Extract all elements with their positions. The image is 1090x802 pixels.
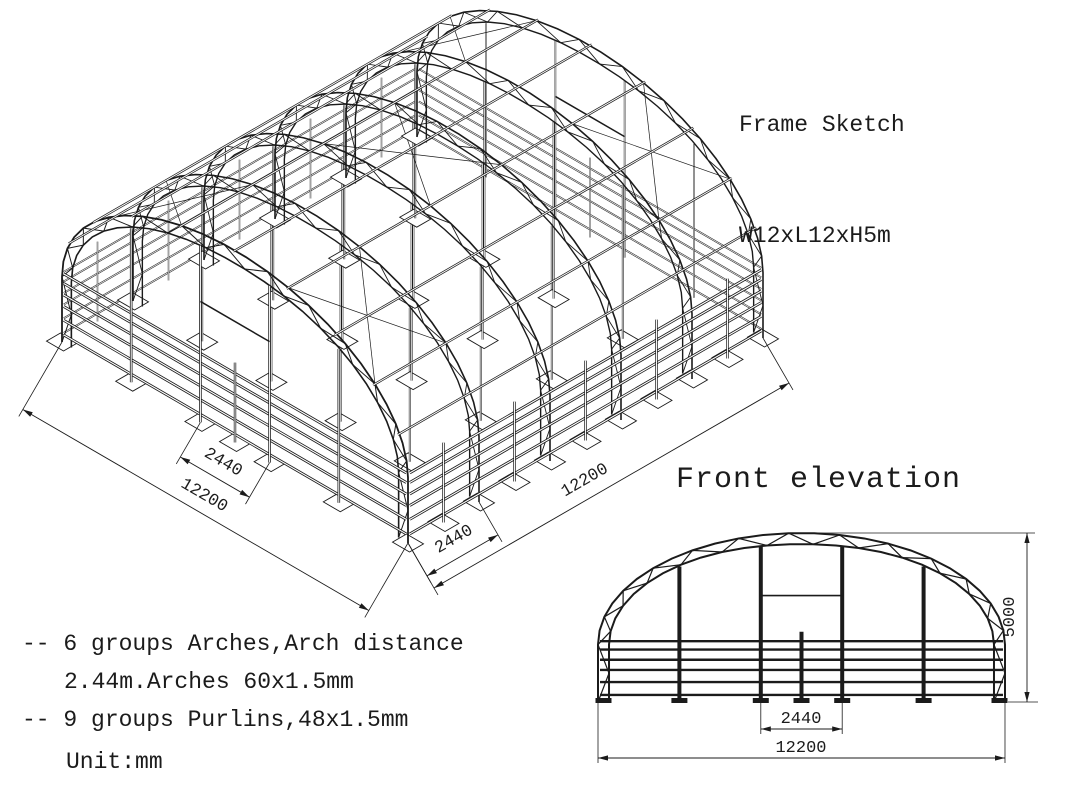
- title-block: Frame Sketch W12xL12xH5m: [739, 33, 905, 329]
- iso-length-total-dimension: 12200: [558, 460, 612, 502]
- note-unit: Unit:mm: [66, 749, 163, 775]
- elevation-door-dimension: 2440: [781, 710, 822, 729]
- note-arches-2: 2.44m.Arches 60x1.5mm: [64, 669, 354, 695]
- front-elevation-structure: [596, 533, 1008, 703]
- drawing-title: Frame Sketch: [739, 107, 905, 144]
- drawing-page: 12200 2440 2440 12200 2440 12200 5000 Fr…: [0, 0, 1090, 802]
- drawing-size: W12xL12xH5m: [739, 218, 905, 255]
- front-elevation-label: Front elevation: [676, 463, 961, 497]
- note-purlins: -- 9 groups Purlins,48x1.5mm: [22, 707, 408, 733]
- elevation-width-dimension: 12200: [775, 739, 826, 758]
- elevation-height-dimension: 5000: [1001, 597, 1020, 638]
- note-arches-1: -- 6 groups Arches,Arch distance: [22, 631, 464, 657]
- isometric-structure: [47, 10, 779, 552]
